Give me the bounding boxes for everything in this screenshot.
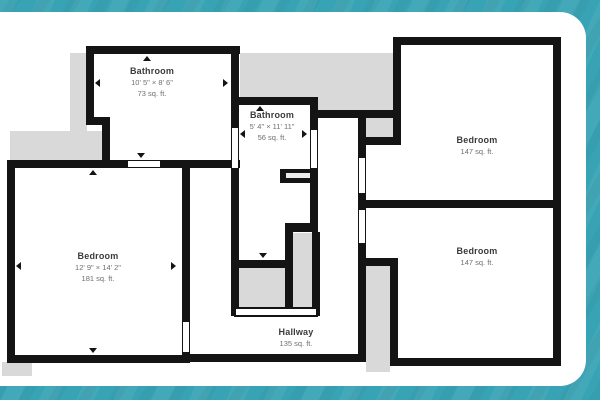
room-area: 56 sq. ft.	[250, 133, 295, 143]
room-label-bedroom-left: Bedroom 12' 9" × 14' 2" 181 sq. ft.	[75, 251, 121, 284]
room-area: 73 sq. ft.	[130, 89, 174, 99]
door-opening	[310, 130, 318, 168]
wall	[86, 46, 240, 54]
room-label-bedroom-top-right: Bedroom 147 sq. ft.	[457, 135, 498, 157]
room-name: Bedroom	[75, 251, 121, 262]
backing-right-strip	[366, 264, 390, 372]
stair-wall	[238, 260, 293, 268]
dimension-arrow-icon	[89, 348, 97, 353]
wall	[231, 168, 239, 316]
dimension-arrow-icon	[16, 262, 21, 270]
room-label-hallway: Hallway 135 sq. ft.	[279, 327, 314, 349]
wall	[310, 97, 318, 130]
wall	[7, 160, 15, 363]
wall	[553, 200, 561, 366]
stair-landing	[234, 307, 318, 317]
room-area: 147 sq. ft.	[457, 258, 498, 268]
room-dimensions: 5' 4" × 11' 11"	[250, 122, 295, 132]
dimension-arrow-icon	[89, 170, 97, 175]
wall	[390, 258, 398, 362]
floor-plan-screenshot: Bathroom 10' 5" × 8' 6" 73 sq. ft. Bathr…	[0, 0, 600, 400]
room-name: Bedroom	[457, 246, 498, 257]
door-opening	[358, 210, 366, 243]
wall	[238, 97, 318, 105]
room-area: 181 sq. ft.	[75, 274, 121, 284]
wall	[7, 355, 190, 363]
wall	[393, 37, 401, 118]
dimension-arrow-icon	[240, 130, 245, 138]
door-opening	[128, 160, 160, 168]
room-area: 135 sq. ft.	[279, 339, 314, 349]
room-label-bedroom-bottom-right: Bedroom 147 sq. ft.	[457, 246, 498, 268]
closet-door-slit	[285, 172, 311, 179]
door-opening	[231, 128, 239, 168]
room-name: Hallway	[279, 327, 314, 338]
dimension-arrow-icon	[95, 79, 100, 87]
door-opening	[358, 158, 366, 193]
wall	[358, 200, 561, 208]
room-name: Bathroom	[130, 66, 174, 77]
backing-left-strip	[70, 53, 87, 133]
backing-top-right	[310, 53, 393, 115]
backing-bottom-left-tab	[2, 362, 32, 376]
room-dimensions: 10' 5" × 8' 6"	[130, 78, 174, 88]
wall	[86, 46, 94, 125]
wall	[393, 37, 561, 45]
dimension-arrow-icon	[302, 130, 307, 138]
room-label-bathroom-1: Bathroom 10' 5" × 8' 6" 73 sq. ft.	[130, 66, 174, 99]
floor-plan: Bathroom 10' 5" × 8' 6" 73 sq. ft. Bathr…	[0, 0, 600, 400]
room-label-bathroom-2: Bathroom 5' 4" × 11' 11" 56 sq. ft.	[250, 110, 295, 143]
wall	[182, 160, 190, 322]
stair-direction-icon	[259, 253, 267, 258]
wall	[231, 46, 239, 128]
room-name: Bathroom	[250, 110, 295, 121]
room-dimensions: 12' 9" × 14' 2"	[75, 263, 121, 273]
wall	[553, 37, 561, 208]
door-opening	[182, 322, 190, 352]
dimension-arrow-icon	[223, 79, 228, 87]
dimension-arrow-icon	[143, 56, 151, 61]
wall	[7, 160, 240, 168]
wall	[182, 354, 366, 362]
room-area: 147 sq. ft.	[457, 147, 498, 157]
backing-top-center	[240, 53, 318, 99]
room-name: Bedroom	[457, 135, 498, 146]
dimension-arrow-icon	[171, 262, 176, 270]
stairwell-void	[239, 268, 312, 309]
dimension-arrow-icon	[137, 153, 145, 158]
stair-wall	[312, 232, 320, 316]
wall	[390, 358, 561, 366]
